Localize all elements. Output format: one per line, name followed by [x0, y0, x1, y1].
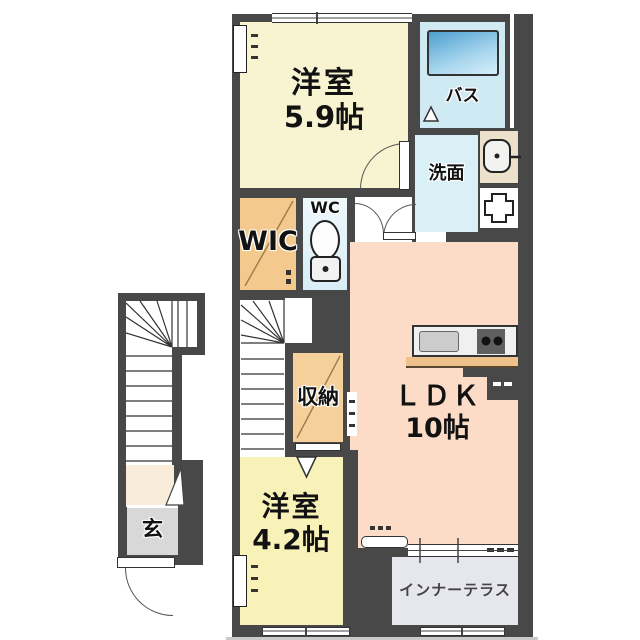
- refrigerator-space: [463, 368, 518, 377]
- label-bedroom-second-size: 4.2帖: [236, 525, 346, 554]
- label-storage: 収納: [289, 386, 347, 408]
- ldk-counter-bar: [361, 536, 408, 548]
- entry-floor: [126, 465, 174, 507]
- storage-door-dash: [349, 412, 355, 415]
- ldk-corner-dot: [370, 526, 375, 530]
- entry-door-arc: [125, 568, 173, 616]
- wall-terrace-left: [345, 548, 392, 637]
- terrace-door-dash: [507, 548, 514, 552]
- ext-stairs-run: [126, 347, 172, 465]
- washbasin-cell: [479, 130, 519, 184]
- stair-landing: [285, 298, 312, 343]
- label-washroom: 洗面: [415, 165, 478, 184]
- window-dash: [251, 34, 258, 37]
- window-dash: [251, 45, 258, 48]
- label-wc: WC: [303, 200, 347, 217]
- ldk-corner-dot: [378, 526, 383, 530]
- label-bedroom-main-size: 5.9帖: [240, 102, 408, 132]
- window-dash: [251, 589, 258, 592]
- label-inner-terrace: インナーテラス: [392, 583, 518, 599]
- label-bedroom-second: 洋室: [240, 492, 343, 521]
- label-bath: バス: [420, 88, 505, 106]
- bottom-slider-bedroom: [262, 627, 350, 636]
- window-dash: [251, 565, 258, 568]
- bottom-slider-terrace: [420, 627, 505, 636]
- ext-stairs-top-inner: [126, 301, 197, 347]
- entry-door-leaf: [117, 557, 175, 568]
- ldk-corner-dot: [386, 526, 391, 530]
- storage-slider: [295, 443, 341, 451]
- washing-machine-cell: [479, 187, 519, 229]
- stove: [477, 329, 505, 354]
- counter-edge: [406, 357, 518, 368]
- storage-door-dash: [349, 400, 355, 403]
- wic-door-pivot-dot: [286, 270, 291, 275]
- terrace-door-dash: [487, 548, 494, 552]
- label-bedroom-main: 洋室: [240, 68, 408, 100]
- door-leaf-bedroom-main: [399, 141, 410, 190]
- floor-plan: 玄: [0, 0, 640, 640]
- internal-stairs: [240, 300, 285, 457]
- window-bedroom-main: [233, 25, 247, 73]
- door-leaf-washroom: [383, 232, 416, 240]
- terrace-door-dash: [497, 548, 504, 552]
- label-ldk-size: 10帖: [360, 415, 515, 443]
- label-ldk: ＬＤＫ: [360, 383, 515, 411]
- window-dash: [251, 577, 258, 580]
- washroom-door-gap: [416, 232, 446, 242]
- kitchen-sink: [419, 331, 459, 352]
- storage-door-dash: [349, 424, 355, 427]
- bathtub: [427, 30, 499, 76]
- window-bedroom-second: [233, 555, 247, 607]
- label-wic: WIC: [238, 228, 298, 256]
- window-dash: [251, 56, 258, 59]
- top-sliding-window: [272, 13, 412, 23]
- wic-door-pivot-dot: [286, 279, 291, 284]
- bath-wall-highlight: [510, 14, 514, 128]
- genkan-label: 玄: [127, 518, 178, 540]
